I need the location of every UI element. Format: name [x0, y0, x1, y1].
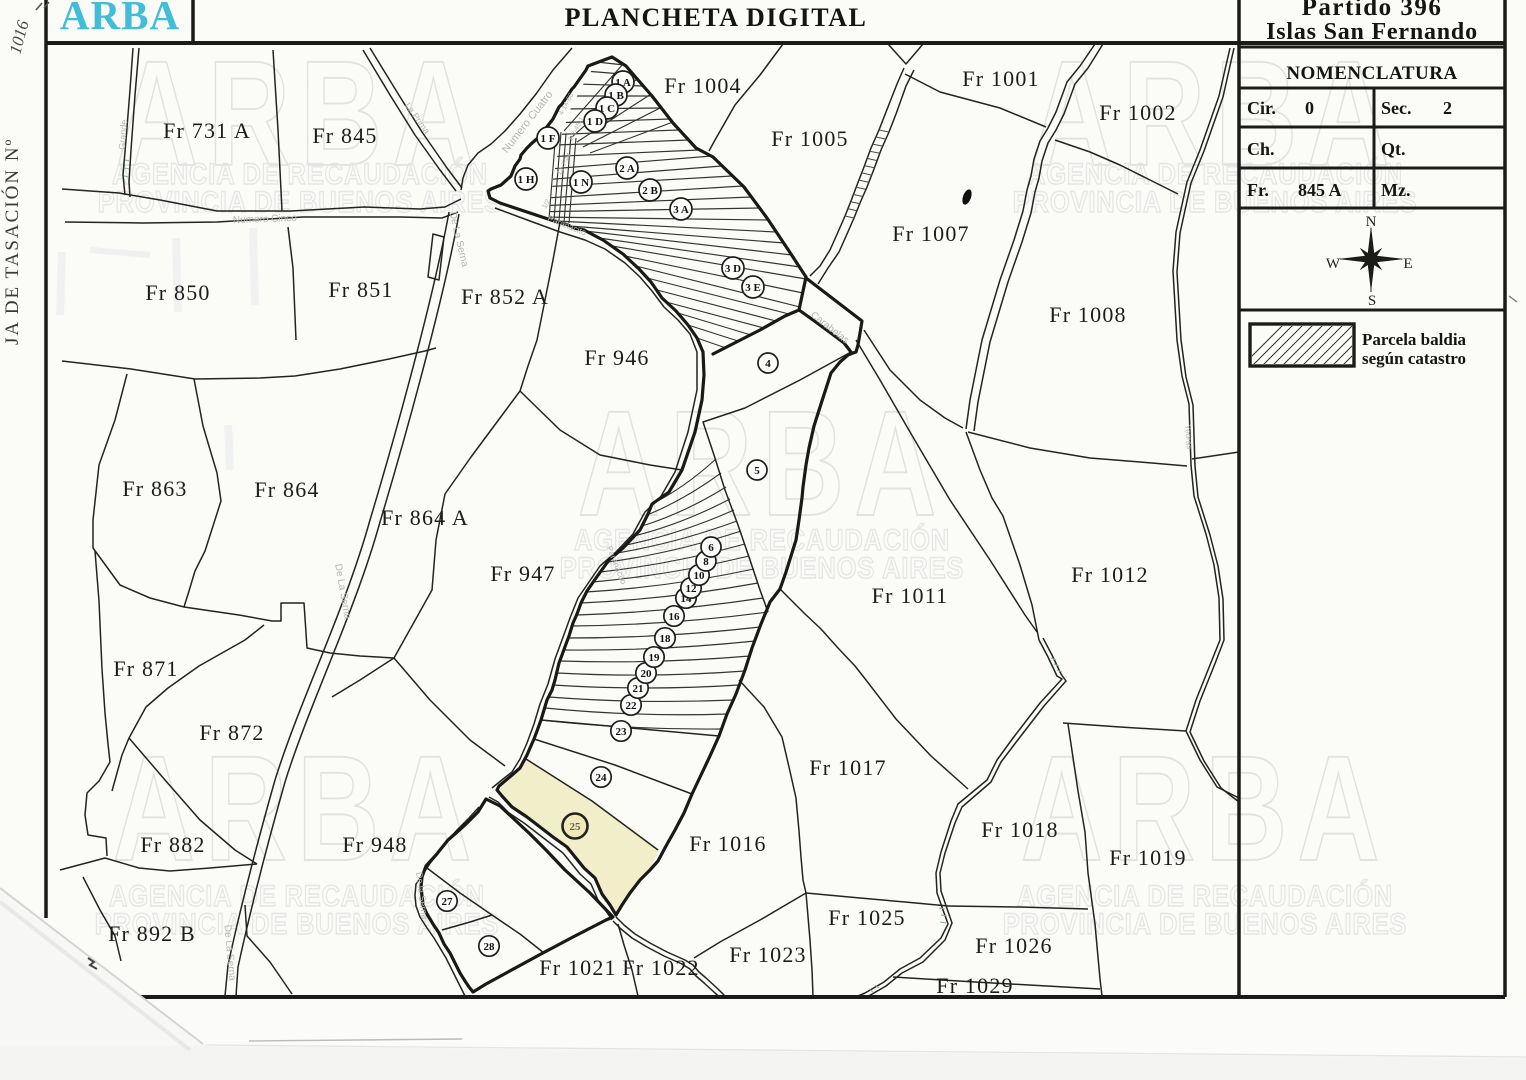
svg-text:2: 2	[1443, 98, 1452, 118]
svg-text:Fr 1001: Fr 1001	[962, 66, 1039, 91]
svg-text:Islas San Fernando: Islas San Fernando	[1266, 19, 1478, 45]
svg-text:2 A: 2 A	[619, 163, 635, 175]
svg-text:Fr 948: Fr 948	[342, 832, 407, 857]
svg-text:5: 5	[754, 465, 760, 477]
svg-text:Fr 1017: Fr 1017	[809, 755, 886, 780]
svg-text:18: 18	[660, 633, 672, 645]
svg-text:Fr 947: Fr 947	[490, 561, 555, 586]
svg-text:10: 10	[694, 570, 706, 582]
svg-text:Fr 946: Fr 946	[584, 345, 649, 370]
svg-text:28: 28	[484, 941, 496, 953]
svg-text:Fr 892 B: Fr 892 B	[108, 921, 196, 946]
svg-text:Fr 1026: Fr 1026	[975, 933, 1052, 958]
svg-text:3 E: 3 E	[745, 282, 761, 294]
svg-text:PROVINCIA DE BUENOS AIRES: PROVINCIA DE BUENOS AIRES	[1013, 185, 1418, 218]
svg-text:Fr 1025: Fr 1025	[828, 905, 905, 930]
svg-text:PROVINCIA DE BUENOS AIRES: PROVINCIA DE BUENOS AIRES	[98, 185, 503, 218]
svg-text:Fr.: Fr.	[1247, 180, 1269, 200]
svg-text:ARBA: ARBA	[1021, 725, 1390, 893]
svg-text:23: 23	[616, 726, 628, 738]
svg-text:N: N	[1366, 214, 1377, 230]
svg-text:Fr 1019: Fr 1019	[1109, 845, 1186, 870]
svg-text:20: 20	[641, 668, 653, 680]
svg-text:Cir.: Cir.	[1247, 98, 1276, 118]
svg-text:8: 8	[703, 556, 709, 568]
svg-text:Fr 851: Fr 851	[328, 277, 393, 302]
svg-text:Qt.: Qt.	[1381, 139, 1406, 159]
svg-text:2 B: 2 B	[642, 185, 658, 197]
svg-text:0: 0	[1305, 98, 1314, 118]
svg-text:1 F: 1 F	[541, 133, 556, 145]
svg-text:25: 25	[570, 821, 582, 833]
svg-text:19: 19	[649, 652, 661, 664]
svg-text:Fr 1016: Fr 1016	[689, 831, 766, 856]
svg-text:Fr 1002: Fr 1002	[1099, 100, 1176, 125]
svg-text:PLANCHETA DIGITAL: PLANCHETA DIGITAL	[565, 3, 868, 32]
svg-text:Fr 1005: Fr 1005	[771, 126, 848, 151]
svg-text:Fr 882: Fr 882	[140, 832, 205, 857]
svg-text:Mz.: Mz.	[1381, 180, 1410, 200]
svg-text:Fr 852 A: Fr 852 A	[461, 284, 549, 309]
svg-text:845 A: 845 A	[1298, 180, 1342, 200]
svg-text:Fr 731 A: Fr 731 A	[163, 118, 251, 143]
svg-text:1 H: 1 H	[518, 174, 535, 186]
svg-text:NOMENCLATURA: NOMENCLATURA	[1286, 63, 1457, 84]
svg-text:Partido 396: Partido 396	[1302, 0, 1443, 21]
svg-text:3 D: 3 D	[725, 263, 741, 275]
svg-text:Parcela baldia: Parcela baldia	[1362, 330, 1467, 349]
svg-text:1 N: 1 N	[573, 177, 589, 189]
svg-text:S: S	[1368, 293, 1376, 309]
svg-text:PROVINCIA DE BUENOS AIRES: PROVINCIA DE BUENOS AIRES	[1003, 907, 1408, 940]
svg-text:Fr 871: Fr 871	[113, 656, 178, 681]
svg-text:Fr 1029: Fr 1029	[936, 973, 1013, 998]
svg-text:Fr 850: Fr 850	[145, 280, 210, 305]
svg-text:24: 24	[596, 772, 608, 784]
svg-text:Fr 1021: Fr 1021	[539, 955, 616, 980]
svg-text:E: E	[1403, 256, 1412, 272]
svg-text:Ch.: Ch.	[1247, 139, 1275, 159]
svg-text:JA DE TASACIÓN Nº: JA DE TASACIÓN Nº	[1, 138, 23, 345]
svg-text:Fr 863: Fr 863	[122, 476, 187, 501]
svg-text:4: 4	[765, 358, 771, 370]
svg-text:Fr 872: Fr 872	[199, 720, 264, 745]
svg-text:Numero Cinco: Numero Cinco	[233, 213, 298, 226]
svg-text:Fr 1022: Fr 1022	[622, 955, 699, 980]
svg-text:Fr 1012: Fr 1012	[1071, 562, 1148, 587]
svg-text:Fr 1018: Fr 1018	[981, 817, 1058, 842]
svg-text:W: W	[1326, 256, 1341, 272]
svg-text:Fr 1023: Fr 1023	[729, 942, 806, 967]
svg-text:según catastro: según catastro	[1362, 349, 1466, 368]
svg-text:3 A: 3 A	[673, 204, 689, 216]
svg-text:Fr 1007: Fr 1007	[892, 221, 969, 246]
svg-text:16: 16	[669, 611, 681, 623]
svg-text:1 D: 1 D	[587, 116, 603, 128]
svg-text:Fr 1008: Fr 1008	[1049, 302, 1126, 327]
svg-text:27: 27	[442, 896, 454, 908]
svg-text:21: 21	[633, 683, 644, 695]
svg-text:ARBA: ARBA	[60, 0, 180, 38]
svg-text:6: 6	[708, 542, 714, 554]
svg-text:Sec.: Sec.	[1381, 98, 1412, 118]
svg-text:Fr 864 A: Fr 864 A	[381, 505, 469, 530]
svg-text:Fr 845: Fr 845	[312, 123, 377, 148]
svg-text:Fr 864: Fr 864	[254, 477, 319, 502]
svg-text:Fr 1011: Fr 1011	[872, 583, 949, 608]
svg-text:22: 22	[626, 700, 638, 712]
svg-text:Fr 1004: Fr 1004	[664, 73, 741, 98]
